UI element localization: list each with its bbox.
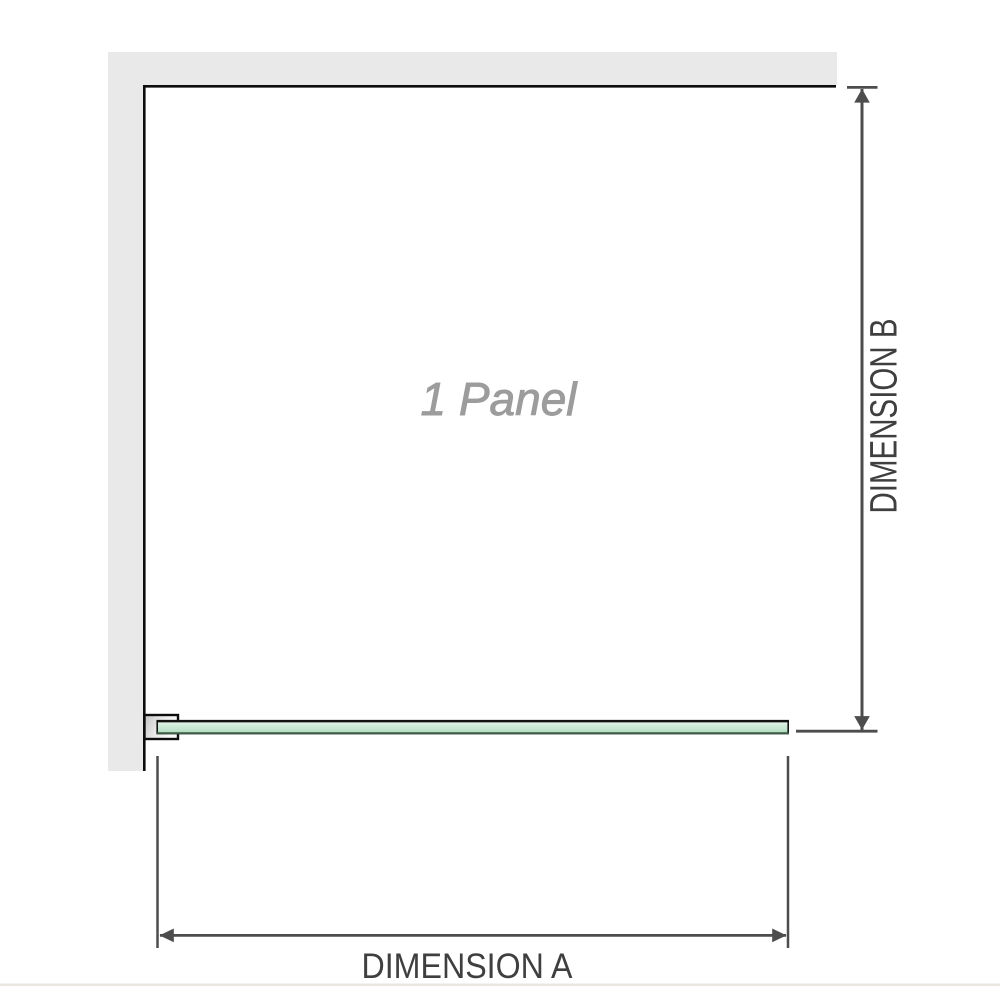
svg-text:DIMENSION A: DIMENSION A	[362, 947, 574, 986]
svg-text:DIMENSION B: DIMENSION B	[864, 319, 906, 514]
svg-text:1 Panel: 1 Panel	[420, 373, 578, 425]
